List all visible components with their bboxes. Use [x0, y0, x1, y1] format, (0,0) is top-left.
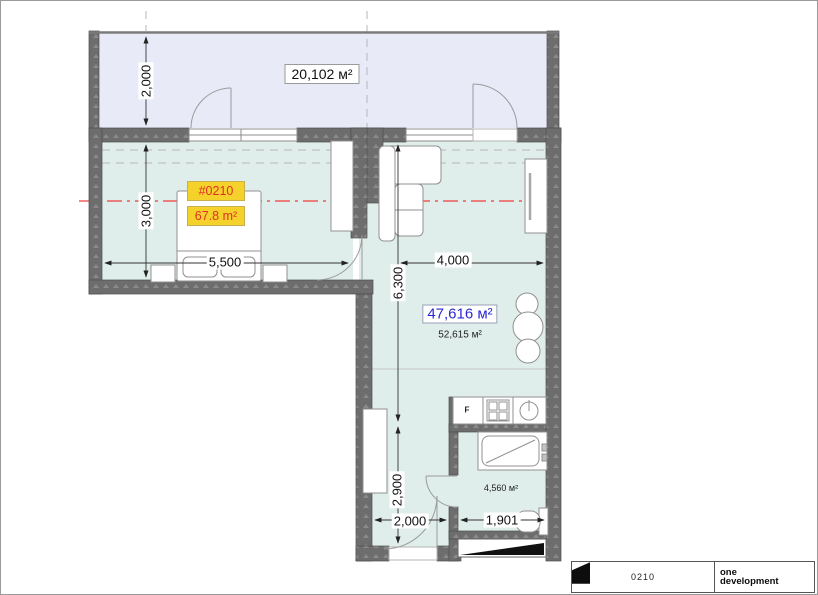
bathroom-left-wall: [449, 432, 458, 475]
dim-bedroom-width: 5,500: [207, 255, 244, 270]
right-wall: [546, 128, 561, 561]
balcony-left-wall: [89, 31, 99, 128]
fridge-label: F: [463, 406, 472, 415]
brand-logo: one development: [714, 562, 814, 592]
hall-wardrobe: [363, 409, 387, 493]
bathroom-top-wall: [449, 424, 546, 432]
dim-hall-width: 2,000: [392, 514, 429, 529]
stove: [487, 400, 509, 421]
bathtub: [478, 432, 547, 470]
entrance-threshold: [389, 547, 437, 560]
floor-plan-drawing: [1, 1, 817, 594]
dim-hall-length: 2,900: [390, 472, 405, 509]
nightstand: [151, 265, 175, 282]
living-area-primary-label: 47,616 м²: [422, 305, 497, 324]
top-wall-segment: [89, 128, 189, 142]
balcony-door-opening: [473, 129, 517, 141]
bathroom-area-label: 4,560 м²: [482, 483, 520, 493]
title-block: 0210 one development: [571, 561, 815, 593]
brand-logo-icon: [572, 562, 590, 584]
drawing-sheet: 20,102 м² 2,000 3,000 5,500 #0210 67.8 m…: [0, 0, 818, 595]
balcony-area-label: 20,102 м²: [285, 64, 360, 84]
dim-balcony-depth: 2,000: [139, 63, 154, 100]
tv-console: [525, 159, 547, 233]
living-area-secondary-label: 52,615 м²: [436, 330, 484, 341]
bottom-wall-segment: [356, 546, 389, 561]
bedroom-bottom-wall: [89, 280, 373, 294]
dim-living-length: 6,300: [391, 265, 406, 302]
nightstand: [263, 265, 287, 282]
dim-bathroom-width: 1,901: [484, 513, 521, 528]
bedroom-left-wall: [89, 128, 102, 294]
balcony-right-wall: [547, 31, 559, 128]
dim-living-width: 4,000: [435, 253, 472, 268]
sheet-code: 0210: [572, 562, 714, 592]
bedroom-wardrobe: [331, 141, 353, 231]
brand-text: one development: [720, 568, 779, 586]
unit-area-tag: 67.8 m²: [187, 206, 245, 226]
dim-bedroom-depth: 3,000: [139, 193, 154, 230]
unit-number-tag: #0210: [187, 181, 245, 201]
toilet: [516, 508, 548, 535]
brand-line-two: development: [720, 577, 779, 586]
